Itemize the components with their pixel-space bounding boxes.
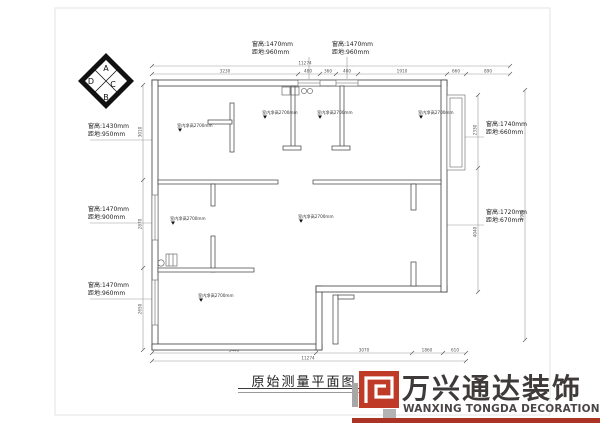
logo-mark-icon: [359, 371, 399, 408]
wall-segment: [340, 86, 344, 148]
dim-label: 1910: [397, 69, 408, 74]
dim-label: 1860: [422, 348, 433, 353]
toilet-icon: [166, 254, 177, 266]
window-sill-text: 距地:950mm: [88, 131, 129, 139]
window-sill-text: 距地:960mm: [88, 290, 129, 298]
room-height-label: 室内净高2700mm: [418, 109, 454, 116]
company-logo: 万兴通达装饰 WANXING TONGDA DECORATION: [350, 366, 600, 423]
wall-segment: [158, 268, 254, 272]
window-height-text: 窗高:1470mm: [88, 282, 129, 290]
compass-letter-a: A: [103, 64, 109, 73]
room-height-label: 室内净高2700mm: [170, 215, 206, 222]
wall-segment: [332, 146, 350, 150]
dim-label: 660: [452, 69, 460, 74]
logo-company-name-en: WANXING TONGDA DECORATION: [403, 403, 599, 415]
window-annotation-left-2: 窗高:1470mm 距地:900mm: [88, 206, 129, 222]
toilet-icon: [158, 260, 164, 266]
logo-spiral-path: [366, 378, 392, 403]
drawing-sheet: A D C B: [0, 0, 600, 423]
window-annotation-top-1: 窗高:1470mm 距地:960mm: [252, 41, 293, 57]
title-underline: [238, 388, 368, 393]
dim-label: 480: [304, 69, 312, 74]
logo-company-name-cn: 万兴通达装饰: [402, 367, 598, 407]
window-annotation-right-2: 窗高:1720mm 距地:670mm: [486, 209, 527, 225]
wall-segment: [411, 184, 416, 210]
dim-label: 610: [451, 348, 459, 353]
wall-segment: [411, 262, 416, 286]
wall-segment: [316, 286, 322, 350]
window-height-text: 窗高:1720mm: [486, 209, 527, 217]
dim-label: 11274: [298, 61, 312, 66]
window-height-text: 窗高:1470mm: [252, 41, 293, 49]
dim-label: 890: [484, 69, 492, 74]
room-height-label: 室内净高2700mm: [177, 122, 213, 129]
dim-label: 3010: [138, 126, 143, 137]
sink-icon: [307, 88, 312, 93]
window-annotation-right-1: 窗高:1740mm 距地:660mm: [486, 121, 527, 137]
window-height-text: 窗高:1430mm: [88, 123, 129, 131]
level-marker-icon: [199, 299, 203, 302]
logo-red-strip: [352, 418, 600, 423]
window-annotation-left-3: 窗高:1470mm 距地:960mm: [88, 282, 129, 298]
wall-segment: [211, 184, 215, 206]
level-marker-icon: [318, 116, 322, 119]
dim-label: 3070: [359, 348, 370, 353]
wall-segment: [211, 236, 215, 272]
wall-segment: [152, 344, 322, 350]
wall-segment: [316, 286, 447, 292]
window-height-text: 窗高:1740mm: [486, 121, 527, 129]
logo-gray-square: [383, 409, 396, 418]
wall-segment: [283, 146, 301, 150]
window-sill-text: 距地:960mm: [252, 49, 293, 57]
window-sill-text: 距地:670mm: [486, 217, 527, 225]
room-height-label: 室内净高2700mm: [317, 109, 353, 116]
dim-label: 360: [324, 69, 332, 74]
wall-segment: [230, 103, 234, 152]
sink-icon: [301, 88, 306, 93]
window-sill-text: 距地:900mm: [88, 214, 129, 222]
compass-letter-c: C: [110, 80, 116, 89]
level-marker-icon: [178, 129, 182, 132]
stove-icon: [282, 87, 290, 95]
wall-segment: [313, 180, 441, 184]
sheet-border: [55, 8, 550, 415]
dim-label: 4040: [473, 226, 478, 237]
dim-label: 11274: [301, 356, 315, 361]
dim-label: 2650: [138, 303, 143, 314]
bay-window-symbol: [450, 98, 462, 167]
compass-icon: A D C B: [78, 53, 134, 109]
window-annotation-top-2: 窗高:1470mm 距地:960mm: [332, 41, 373, 57]
wall-segment: [158, 180, 278, 184]
level-marker-icon: [299, 220, 303, 223]
compass-letter-d: D: [88, 77, 94, 86]
dim-label: 2330: [473, 124, 478, 135]
window-height-text: 窗高:1470mm: [332, 41, 373, 49]
wall-segment: [333, 295, 338, 344]
dim-label: 2870: [138, 218, 143, 229]
room-height-label: 室内净高2700mm: [298, 213, 334, 220]
annotation-leaders: [90, 57, 484, 299]
room-height-label: 室内净高2700mm: [262, 109, 298, 116]
window-height-text: 窗高:1470mm: [88, 206, 129, 214]
logo-glyph-icon: [359, 371, 399, 408]
dimension-labels: 11274 3230 480 360 480 1910 660 890 3440…: [138, 61, 525, 361]
level-marker-icon: [419, 116, 423, 119]
compass-letter-b: B: [103, 93, 109, 102]
level-marker-icon: [171, 222, 175, 225]
wall-segment: [291, 86, 295, 148]
window-sill-text: 距地:660mm: [486, 129, 527, 137]
window-annotation-left-1: 窗高:1430mm 距地:950mm: [88, 123, 129, 139]
room-height-label: 室内净高2700mm: [198, 292, 234, 299]
window-sill-text: 距地:960mm: [332, 49, 373, 57]
wall-segment: [338, 295, 354, 299]
dim-label: 3230: [220, 69, 231, 74]
level-marker-icon: [263, 116, 267, 119]
logo-gray-bar: [352, 383, 358, 407]
